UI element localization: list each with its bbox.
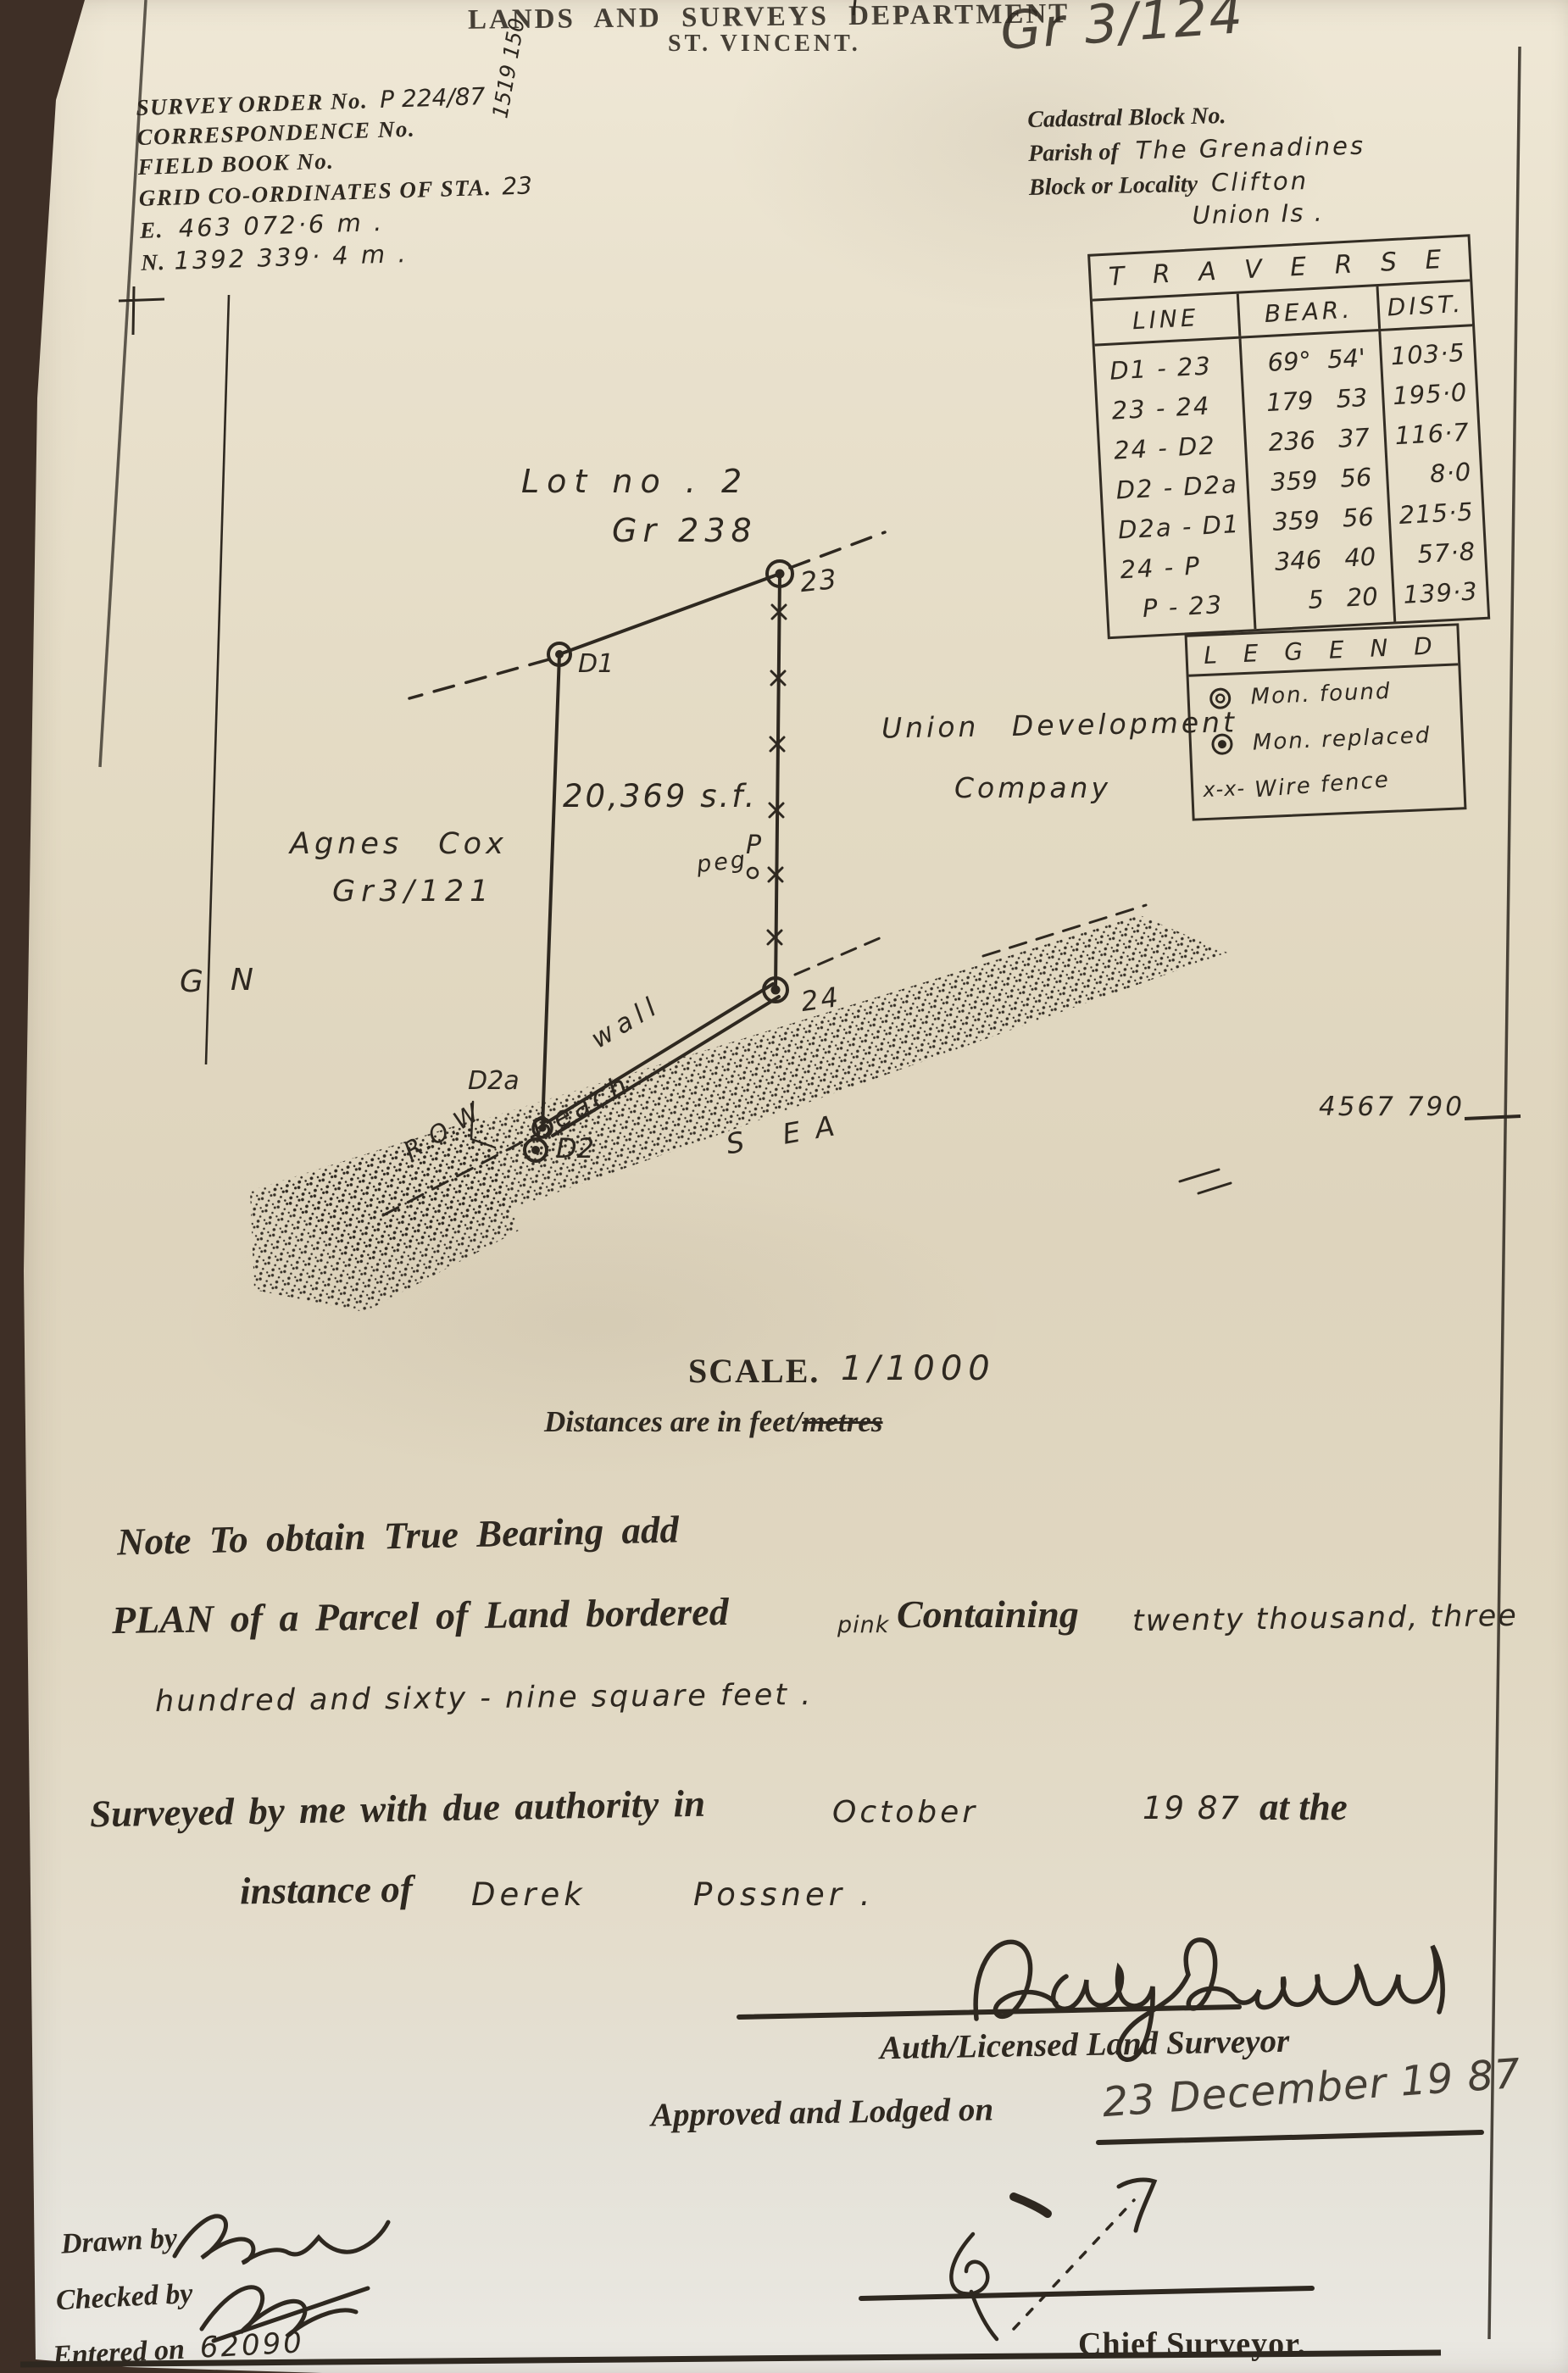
client-first-name: Derek [471, 1876, 587, 1913]
area-label: 20,369 s.f. [563, 778, 757, 814]
legend-title: L E G E N D [1187, 625, 1459, 676]
plan-description-serif: PLAN of a Parcel of Land bordered [112, 1589, 729, 1642]
locality-value: Clifton [1211, 166, 1309, 197]
owner-name-line1: Union Development [881, 705, 1238, 744]
column-header-dist: DIST. [1379, 281, 1472, 329]
locality-label: Block or Locality [1029, 171, 1198, 201]
instance-label: instance of [240, 1867, 413, 1914]
struck-metres: metres [802, 1405, 882, 1438]
surveyed-month: October [832, 1795, 978, 1830]
owner-name-line2: Company [954, 771, 1111, 804]
grid-north-g-label: G [180, 964, 203, 999]
entered-on-label: Entered on [52, 2334, 186, 2372]
grid-north-n-label: N [231, 963, 253, 998]
island-value: Union Is . [1192, 198, 1324, 230]
wire-fence-icon: x-x- [1193, 776, 1255, 803]
sheet-number: 4567 790 [1319, 1092, 1465, 1122]
neighbor-name-label: Agnes Cox [290, 827, 508, 861]
survey-order-value: P 224/87 [380, 82, 486, 114]
client-last-name: Possner . [693, 1876, 874, 1913]
chief-surveyor-label: Chief Surveyor. [1078, 2326, 1306, 2363]
distances-note: Distances are in feet/metres [544, 1405, 883, 1439]
survey-info-block: SURVEY ORDER No. P 224/87 CORRESPONDENCE… [136, 81, 535, 275]
station-24-label: 24 [799, 981, 843, 1018]
entered-on-value: 62090 [199, 2326, 305, 2365]
station-d2a-label: D2a [468, 1066, 520, 1096]
approved-lodged-label: Approved and Lodged on [651, 2090, 994, 2134]
area-words-line2: hundred and sixty - nine square feet . [155, 1678, 814, 1719]
northing-label: N. [141, 249, 166, 275]
column-header-line: LINE [1093, 294, 1238, 344]
survey-order-label: SURVEY ORDER No. [136, 87, 369, 120]
scale-label: SCALE. [688, 1351, 820, 1391]
cadastral-info-block: Cadastral Block No. Parish of The Grenad… [1027, 100, 1367, 233]
legend-item-wire-fence: x-x- Wire fence [1193, 770, 1391, 803]
peg-text-label: peg [696, 847, 749, 878]
surveyor-title-label: Auth/Licensed Land Surveyor [880, 2022, 1290, 2067]
parish-value: The Grenadines [1135, 131, 1365, 165]
station-d1-label: D1 [578, 649, 614, 679]
drawn-by-label: Drawn by [60, 2222, 178, 2260]
peg-point-label: P [746, 831, 761, 860]
grid-station-value: 23 [502, 171, 533, 200]
bordered-pink-note: pink [837, 1612, 889, 1638]
lot-label: Lot no . 2 [521, 463, 749, 500]
area-words-line1: twenty thousand, three [1132, 1599, 1518, 1638]
traverse-table: T R A V E R S E LINE BEAR. DIST. D1 - 23… [1087, 234, 1490, 639]
surveyed-suffix: at the [1259, 1785, 1348, 1829]
station-d2-label: D2 [556, 1132, 594, 1164]
surveyed-year: 19 87 [1143, 1790, 1241, 1826]
scanned-survey-plan-photo: LANDS AND SURVEYS DEPARTMENT ST. VINCENT… [0, 0, 1568, 2373]
column-header-bear: BEAR. [1237, 286, 1381, 336]
easting-value: 463 072·6 m . [178, 208, 384, 243]
parish-label: Parish of [1028, 139, 1119, 167]
easting-label: E. [140, 217, 164, 243]
scale-value: 1/1000 [841, 1349, 996, 1388]
lot-ref-label: Gr 238 [612, 512, 758, 549]
containing-label: Containing [897, 1592, 1079, 1637]
neighbor-ref-label: Gr3/121 [332, 875, 494, 909]
territory-title: ST. VINCENT. [668, 31, 861, 58]
station-23-label: 23 [798, 563, 839, 598]
